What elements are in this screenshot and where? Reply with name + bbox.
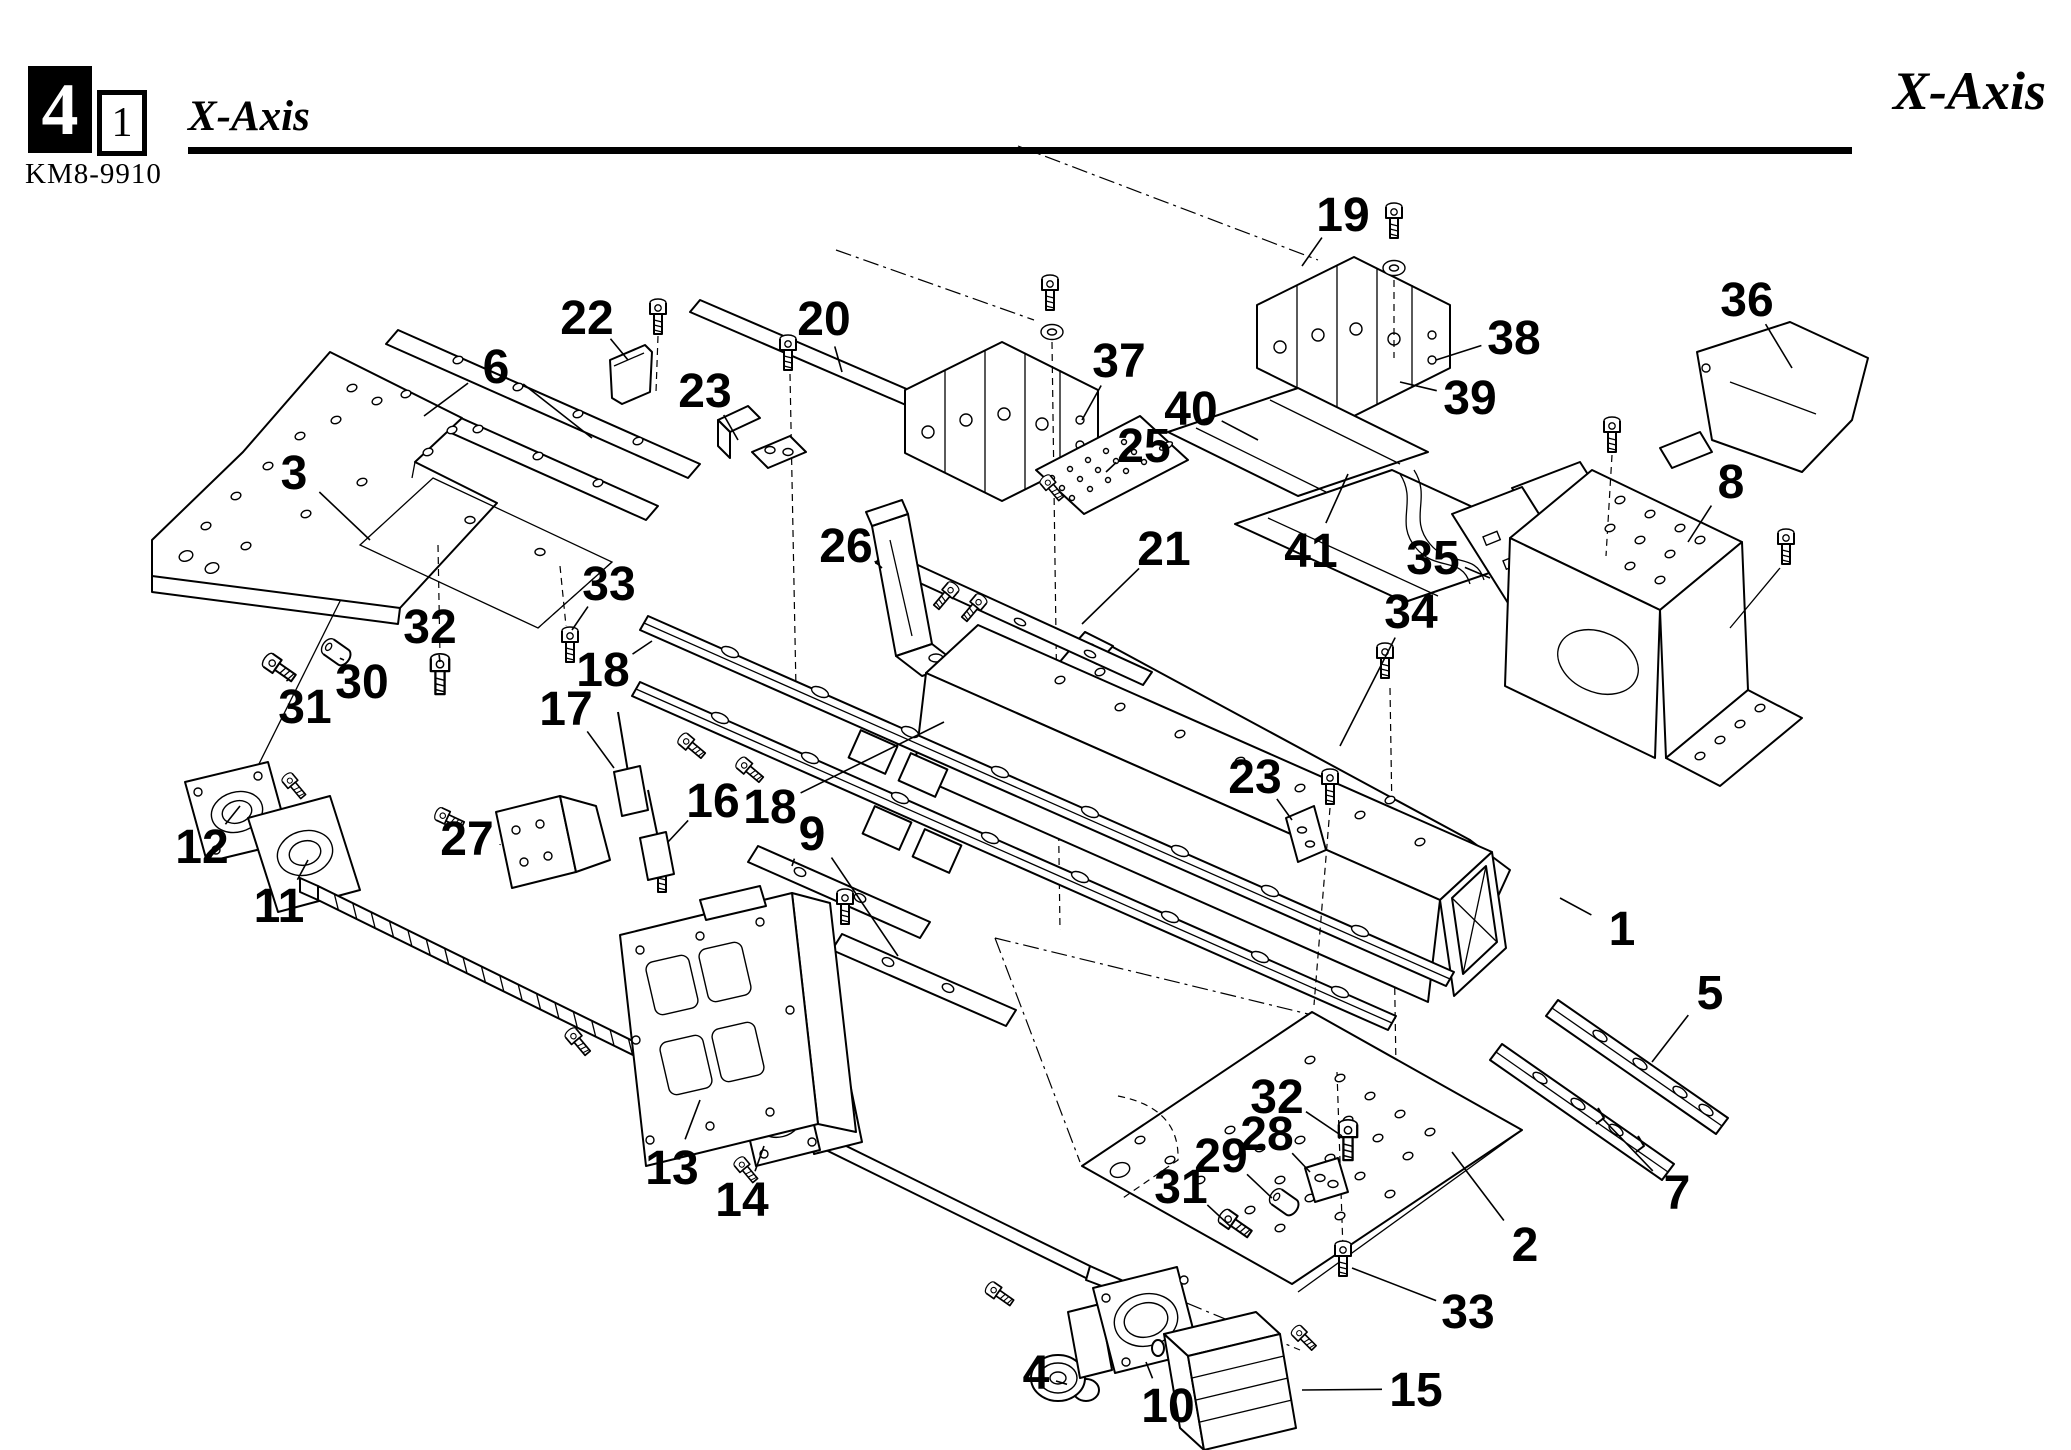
part-label-27: 27 bbox=[440, 813, 493, 866]
part-label-3: 3 bbox=[281, 447, 308, 500]
hole bbox=[1104, 449, 1109, 454]
part-label-12: 12 bbox=[175, 821, 228, 874]
part-label-6: 6 bbox=[483, 341, 510, 394]
manual-page: 4 1 KM8-9910 X-Axis X-Axis bbox=[0, 0, 2071, 1450]
hole bbox=[632, 1036, 640, 1044]
part-label-18: 18 bbox=[576, 644, 629, 697]
leader-line-21 bbox=[1082, 568, 1139, 624]
hole bbox=[1086, 458, 1091, 463]
part-label-20: 20 bbox=[797, 293, 850, 346]
part-label-2: 2 bbox=[1512, 1219, 1539, 1272]
part-label-15: 15 bbox=[1389, 1364, 1442, 1417]
part-label-23: 23 bbox=[1228, 751, 1281, 804]
hole bbox=[786, 1006, 794, 1014]
hole bbox=[1096, 468, 1101, 473]
part-label-11: 11 bbox=[254, 880, 305, 933]
part-33-bolt-lower bbox=[1335, 1241, 1351, 1276]
leader-line-5 bbox=[1652, 1015, 1688, 1062]
hole bbox=[1088, 487, 1093, 492]
part-label-32: 32 bbox=[1250, 1071, 1303, 1124]
hole bbox=[1106, 478, 1111, 483]
part-label-31: 31 bbox=[1154, 1161, 1207, 1214]
part-label-9: 9 bbox=[799, 808, 826, 861]
leader-line-1 bbox=[1560, 898, 1591, 915]
part-label-34: 34 bbox=[1384, 586, 1438, 639]
part-2-plate bbox=[1082, 1012, 1522, 1292]
hole bbox=[1060, 486, 1065, 491]
part-label-16: 16 bbox=[686, 775, 739, 828]
part-31-bolt-upper bbox=[260, 651, 298, 684]
part-22-bracket bbox=[610, 299, 666, 404]
part-label-35: 35 bbox=[1406, 532, 1459, 585]
part-label-7: 7 bbox=[1664, 1167, 1691, 1220]
exploded-parts-diagram: 1234567891011121314151617181819202122232… bbox=[0, 0, 2071, 1450]
part-label-21: 21 bbox=[1137, 523, 1190, 576]
hole bbox=[636, 946, 644, 954]
leader-line-16 bbox=[668, 820, 688, 842]
leader-line-32 bbox=[439, 655, 440, 662]
hole bbox=[706, 1122, 714, 1130]
part-label-1: 1 bbox=[1609, 903, 1636, 956]
hole bbox=[1078, 477, 1083, 482]
part-10-motor-flange bbox=[983, 1267, 1199, 1378]
hole bbox=[696, 932, 704, 940]
part-label-14: 14 bbox=[715, 1174, 769, 1227]
part-label-8: 8 bbox=[1718, 456, 1745, 509]
part-label-25: 25 bbox=[1117, 420, 1170, 473]
leader-line-18 bbox=[633, 641, 652, 654]
part-label-40: 40 bbox=[1164, 383, 1217, 436]
part-label-39: 39 bbox=[1443, 372, 1496, 425]
part-label-36: 36 bbox=[1720, 274, 1773, 327]
part-3-plate bbox=[152, 352, 497, 624]
part-label-5: 5 bbox=[1697, 967, 1724, 1020]
leader-line-33 bbox=[1352, 1268, 1436, 1301]
part-label-41: 41 bbox=[1284, 525, 1337, 578]
part-label-26: 26 bbox=[819, 520, 872, 573]
leader-line-17 bbox=[587, 731, 614, 768]
part-label-33: 33 bbox=[582, 558, 635, 611]
part-label-32: 32 bbox=[403, 601, 456, 654]
part-8-box bbox=[1505, 417, 1802, 786]
part-label-30: 30 bbox=[335, 656, 388, 709]
part-label-31: 31 bbox=[278, 681, 331, 734]
part-13-carriage bbox=[563, 886, 856, 1166]
hole bbox=[1070, 496, 1075, 501]
part-label-38: 38 bbox=[1487, 312, 1540, 365]
part-label-19: 19 bbox=[1316, 189, 1369, 242]
part-label-4: 4 bbox=[1023, 1347, 1050, 1400]
part-label-13: 13 bbox=[645, 1142, 698, 1195]
hole bbox=[1068, 467, 1073, 472]
leader-line-15 bbox=[1302, 1389, 1382, 1390]
part-label-33: 33 bbox=[1441, 1286, 1494, 1339]
part-label-10: 10 bbox=[1141, 1380, 1194, 1433]
part-label-22: 22 bbox=[560, 292, 613, 345]
part-36-bracket bbox=[1660, 322, 1868, 472]
part-label-18: 18 bbox=[743, 781, 796, 834]
part-label-23: 23 bbox=[678, 365, 731, 418]
part-label-37: 37 bbox=[1092, 335, 1145, 388]
leader-line-34 bbox=[1340, 638, 1395, 746]
hole bbox=[756, 918, 764, 926]
hole bbox=[766, 1108, 774, 1116]
